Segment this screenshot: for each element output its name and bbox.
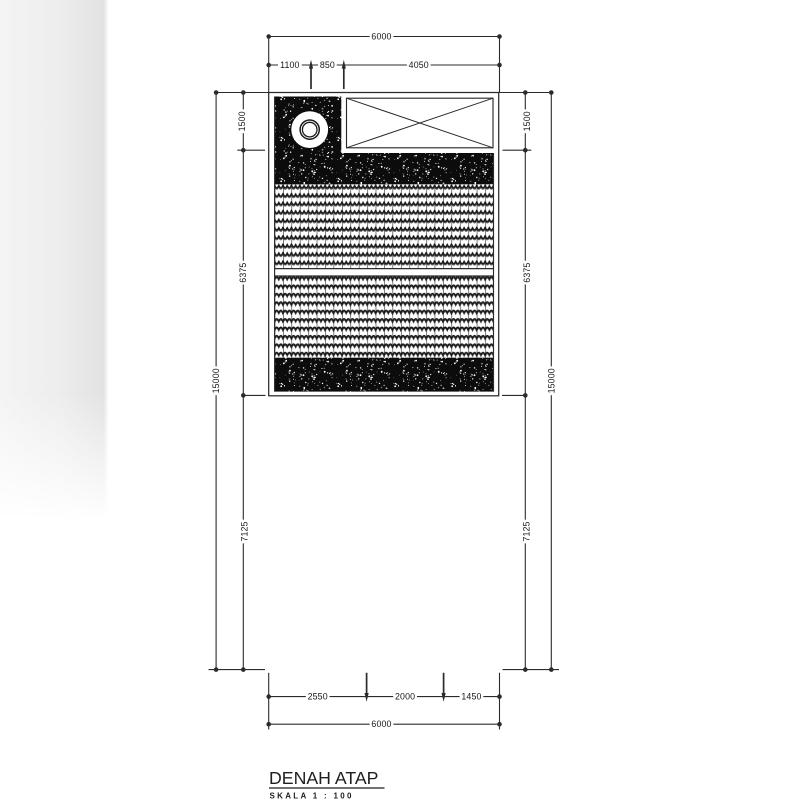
svg-text:6000: 6000: [371, 32, 391, 42]
svg-text:7125: 7125: [240, 521, 250, 541]
svg-text:1500: 1500: [522, 111, 532, 131]
svg-text:850: 850: [320, 60, 335, 70]
svg-text:4050: 4050: [409, 60, 429, 70]
svg-text:15000: 15000: [211, 368, 221, 393]
svg-text:2000: 2000: [395, 692, 415, 702]
svg-text:DENAH ATAP: DENAH ATAP: [269, 768, 378, 788]
svg-text:15000: 15000: [546, 368, 556, 393]
svg-text:1500: 1500: [237, 111, 247, 131]
svg-text:2550: 2550: [308, 692, 328, 702]
svg-text:1450: 1450: [461, 692, 481, 702]
svg-text:6000: 6000: [371, 719, 391, 729]
svg-text:7125: 7125: [521, 521, 531, 541]
svg-text:1100: 1100: [280, 60, 300, 70]
svg-text:6375: 6375: [238, 263, 248, 283]
svg-text:6375: 6375: [522, 263, 532, 283]
svg-text:SKALA 1 : 100: SKALA 1 : 100: [270, 792, 354, 801]
